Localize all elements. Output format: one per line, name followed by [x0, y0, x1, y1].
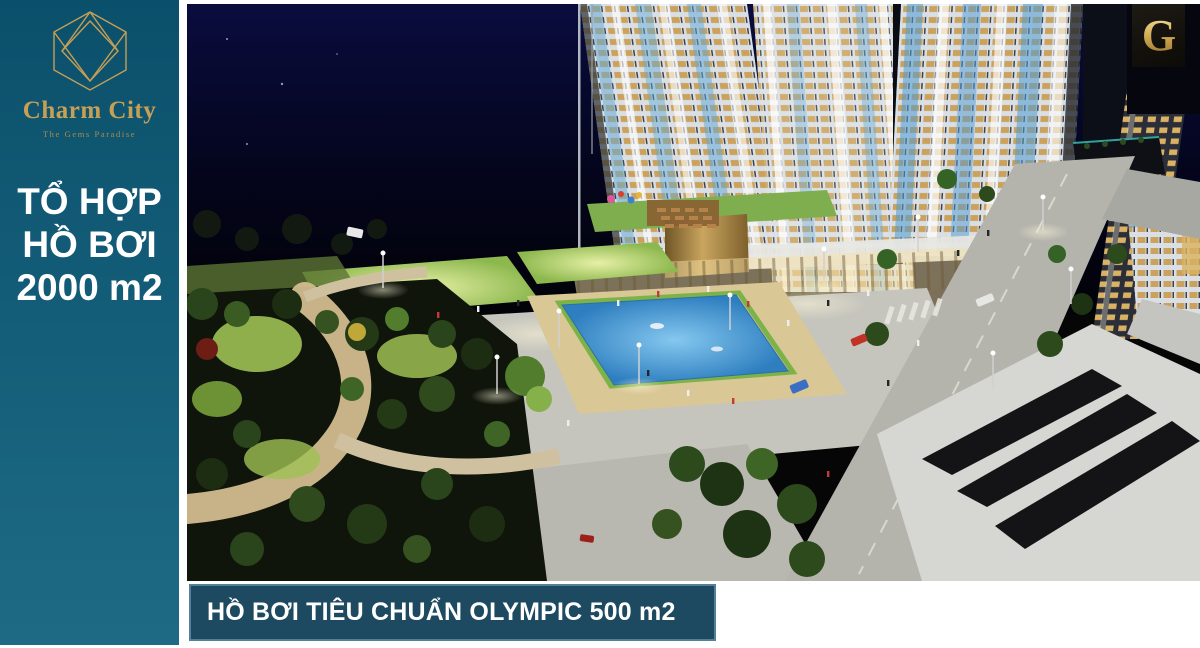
g-letter: G: [1141, 11, 1175, 60]
caption-banner: HỒ BƠI TIÊU CHUẨN OLYMPIC 500 m2: [189, 584, 716, 641]
sidebar: Charm City The Gems Paradise TỔ HỢP HỒ B…: [0, 0, 179, 645]
g-letter-icon: G: [1138, 11, 1180, 61]
headline-line-1: TỔ HỢP: [0, 181, 179, 224]
slide: Charm City The Gems Paradise TỔ HỢP HỒ B…: [0, 0, 1200, 648]
masterplan-render: [187, 4, 1200, 581]
sidebar-headline: TỔ HỢP HỒ BƠI 2000 m2: [0, 181, 179, 310]
charm-city-gem-logo-icon: [42, 8, 138, 101]
g-logo-badge: G: [1132, 4, 1185, 67]
headline-line-2: HỒ BƠI: [0, 224, 179, 267]
brand-tagline: The Gems Paradise: [43, 129, 136, 139]
caption-text: HỒ BƠI TIÊU CHUẨN OLYMPIC 500 m2: [207, 598, 676, 627]
brand-name: Charm City: [23, 97, 156, 125]
headline-line-3: 2000 m2: [0, 267, 179, 310]
render-area: [187, 4, 1200, 581]
